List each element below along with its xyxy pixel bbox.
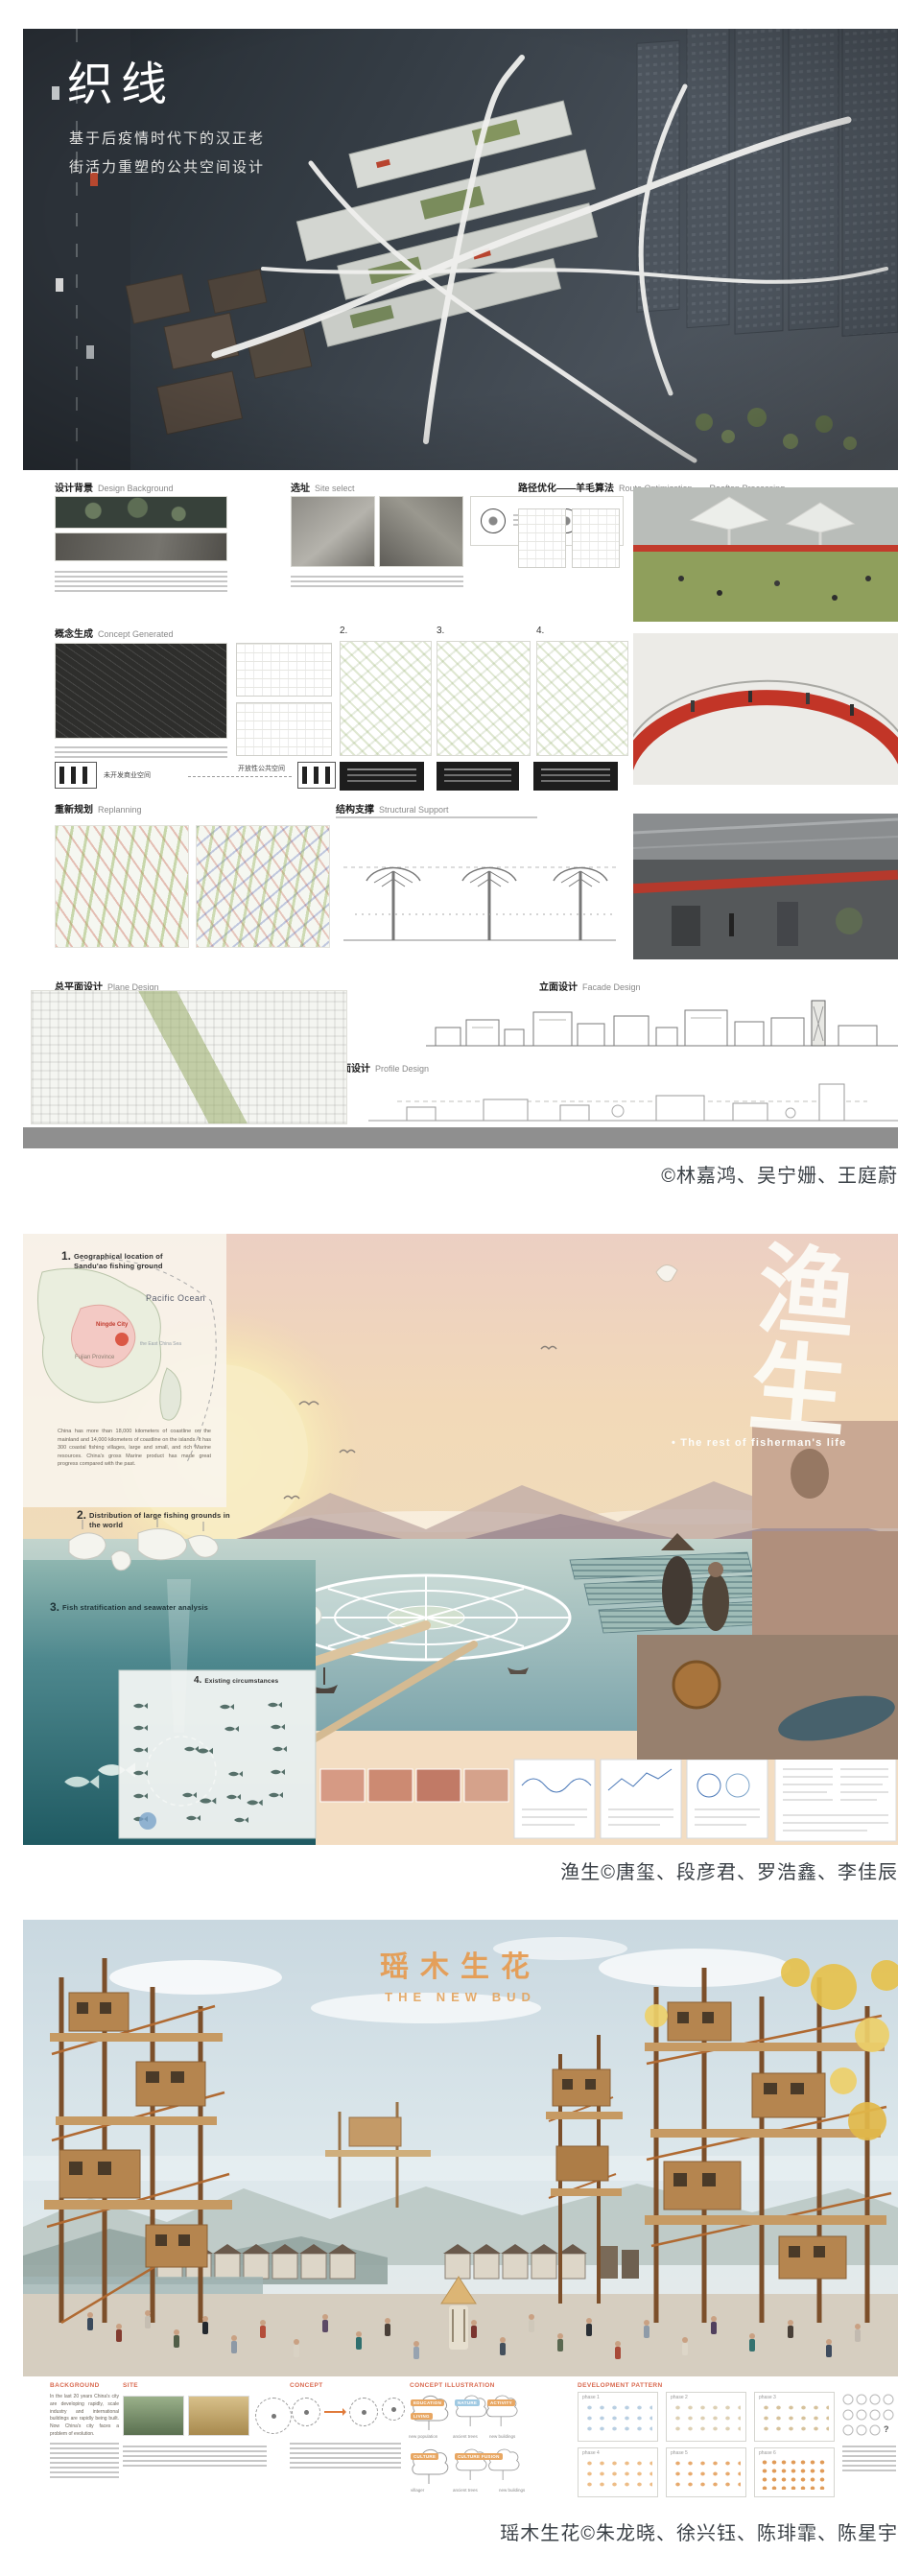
chip-activity: ACTIVITY <box>487 2399 515 2406</box>
concept-dark-sketch <box>55 643 227 739</box>
commercial-space-icon <box>55 762 97 789</box>
label-pacific-ocean: Pacific Ocean <box>146 1293 205 1303</box>
chip-culture: CULTURE <box>411 2453 438 2460</box>
structural-support-drawing <box>336 823 624 948</box>
route-diagram-box-a <box>518 508 566 568</box>
profile-section-drawing <box>368 1073 898 1125</box>
label-east-china-sea: the East China Sea <box>140 1341 181 1347</box>
poster1-subtitle: 基于后疫情时代下的汉正老 街活力重塑的公共空间设计 <box>69 125 265 182</box>
poster1-subtitle-line1: 基于后疫情时代下的汉正老 <box>69 125 265 154</box>
poster1-footer-bar <box>23 1127 898 1148</box>
master-plan-drawing <box>31 990 347 1124</box>
route-method-icon-1 <box>481 508 506 533</box>
render-photo-red-ramp <box>633 633 898 785</box>
header-design-background: 设计背景Design Background <box>55 480 174 494</box>
concept-map-4 <box>536 641 628 756</box>
poster-the-new-bud[interactable]: 瑶木生花 THE NEW BUD BACKGROUND SITE CONCEPT… <box>23 1920 898 2506</box>
phase-box-6: phase 6 <box>754 2447 835 2497</box>
column-header-concept-illustration: CONCEPT ILLUSTRATION <box>410 2382 495 2389</box>
chip-culture-fusion: CULTURE FUSION <box>455 2453 503 2460</box>
phase-box-5: phase 5 <box>666 2447 746 2497</box>
notes-text-panel <box>775 1757 896 1841</box>
poster3-title: 瑶木生花 <box>23 1943 898 1985</box>
concept-arrow <box>324 2411 345 2413</box>
column-header-background: BACKGROUND <box>50 2382 100 2389</box>
concept-caption-black-2 <box>437 762 519 791</box>
concept-connector-line <box>188 776 292 777</box>
column-header-site: SITE <box>123 2382 138 2389</box>
label-fujian-province: Fujian Province <box>75 1355 114 1360</box>
chip-nature: NATURE <box>455 2399 480 2406</box>
site-photo-village <box>123 2396 184 2436</box>
fish-species-panel <box>119 1670 316 1845</box>
site-photo-1 <box>291 496 375 567</box>
concept-text-lines <box>290 2443 401 2445</box>
chip-education: EDUCATION <box>411 2399 444 2406</box>
header-site-select: 选址Site select <box>291 480 355 494</box>
site-photo-terraces <box>188 2396 249 2436</box>
render-photo-canopy-plaza <box>633 487 898 622</box>
section4-header: 4.Existing circumstances <box>194 1675 278 1686</box>
section2-header: 2.Distribution of large fishing grounds … <box>77 1508 233 1530</box>
site-circle-diagram <box>255 2398 292 2434</box>
legend-notes-lines <box>842 2446 896 2447</box>
poster2-tagline: • The rest of fisherman's life <box>672 1437 846 1449</box>
phase-box-3: phase 3 <box>754 2392 835 2442</box>
structural-support-subtext <box>336 816 537 818</box>
treehouse-tower-right <box>645 1958 898 2323</box>
render-photo-interior <box>633 814 898 959</box>
chip-living: LIVING <box>411 2413 433 2420</box>
background-text-lines <box>50 2443 119 2445</box>
column-header-development-pattern: DEVELOPMENT PATTERN <box>578 2382 663 2389</box>
poster3-title-block: 瑶木生花 THE NEW BUD <box>23 1943 898 2004</box>
water-quality-panels <box>514 1760 767 1838</box>
header-structural-support: 结构支撑Structural Support <box>336 801 449 815</box>
concept-circle-2 <box>349 2398 378 2426</box>
legend-question-mark: ? <box>884 2424 889 2434</box>
background-text-lines <box>55 571 227 573</box>
satellite-map-thumbnail <box>55 532 227 561</box>
background-paragraph: In the last 20 years China's city are de… <box>50 2394 119 2439</box>
label-open-public-space: 开放性公共空间 <box>238 764 285 773</box>
top-spacer <box>0 0 921 29</box>
diagram-number-4: 4. <box>536 626 544 636</box>
site-text-lines <box>123 2446 267 2447</box>
concept-diagram-box-2 <box>236 702 332 756</box>
header-facade-design: 立面设计Facade Design <box>539 979 641 993</box>
section3-header: 3.Fish stratification and seawater analy… <box>50 1600 208 1614</box>
column-header-concept: CONCEPT <box>290 2382 323 2389</box>
poster1-hero-render: 织线 基于后疫情时代下的汉正老 街活力重塑的公共空间设计 <box>23 29 898 470</box>
concept-circle-3 <box>382 2398 405 2421</box>
sublabel-new-population: new population <box>409 2434 437 2439</box>
canopy-plaza-illustration <box>633 487 898 622</box>
replanning-map-1 <box>55 825 189 948</box>
phase-box-2: phase 2 <box>666 2392 746 2442</box>
public-space-icon <box>297 762 336 789</box>
poster1-caption: ©林嘉鸿、吴宁姗、王庭蔚 <box>23 1160 898 1188</box>
route-diagram-box-b <box>572 508 620 568</box>
concept-caption-black-3 <box>533 762 618 791</box>
sublabel-villager: villager <box>411 2488 424 2493</box>
diagram-number-2: 2. <box>340 626 347 636</box>
concept-caption-black-1 <box>340 762 424 791</box>
label-ningde-city: Ningde City <box>96 1322 128 1328</box>
tree-outline-diagrams <box>413 2396 519 2484</box>
poster1-title: 织线 <box>67 46 175 113</box>
site-text-lines <box>291 576 463 578</box>
interior-illustration <box>633 814 898 959</box>
sublabel-ancient-trees-1: ancient trees <box>453 2434 478 2439</box>
concept-circle-1 <box>292 2398 320 2426</box>
phase-box-1: phase 1 <box>578 2392 658 2442</box>
section1-header: 1.Geographical location of Sandu'ao fish… <box>61 1249 194 1271</box>
diagram-number-3: 3. <box>437 626 444 636</box>
poster-weaving-lines[interactable]: 织线 基于后疫情时代下的汉正老 街活力重塑的公共空间设计 设计背景Design … <box>23 29 898 1148</box>
concept-diagram-box-1 <box>236 643 332 697</box>
poster3-caption: 瑶木生花©朱龙晓、徐兴钰、陈琲霏、陈星宇 <box>23 2517 898 2545</box>
site-photo-2 <box>379 496 463 567</box>
world-map-thumbnail <box>55 496 227 529</box>
sublabel-ancient-trees-2: ancient trees <box>453 2488 478 2493</box>
concept-map-3 <box>437 641 531 756</box>
facade-elevation-drawing <box>426 993 898 1051</box>
section1-paragraph: China has more than 18,000 kilometers of… <box>58 1428 211 1469</box>
sublabel-new-buildings-2: new buildings <box>499 2488 525 2493</box>
survey-photo-thumbnails <box>320 1769 508 1802</box>
poster2-caption: 渔生©唐玺、段彦君、罗浩鑫、李佳辰 <box>23 1856 898 1884</box>
phase-box-4: phase 4 <box>578 2447 658 2497</box>
red-ramp-illustration <box>633 633 898 785</box>
poster1-subtitle-line2: 街活力重塑的公共空间设计 <box>69 154 265 182</box>
header-replanning: 重新规划Replanning <box>55 801 142 815</box>
header-concept-generated: 概念生成Concept Generated <box>55 626 174 640</box>
bottom-spacer <box>0 2545 921 2576</box>
poster-fisherman-life[interactable]: 1.Geographical location of Sandu'ao fish… <box>23 1234 898 1845</box>
poster3-hero-collage: 瑶木生花 THE NEW BUD <box>23 1920 898 2376</box>
label-undeveloped-commercial: 未开发商业空间 <box>104 770 151 780</box>
replanning-map-2 <box>196 825 330 948</box>
poster3-subtitle: THE NEW BUD <box>23 1990 898 2004</box>
concept-map-2 <box>340 641 432 756</box>
sublabel-new-buildings-1: new buildings <box>489 2434 515 2439</box>
concept-text-lines <box>55 746 227 748</box>
